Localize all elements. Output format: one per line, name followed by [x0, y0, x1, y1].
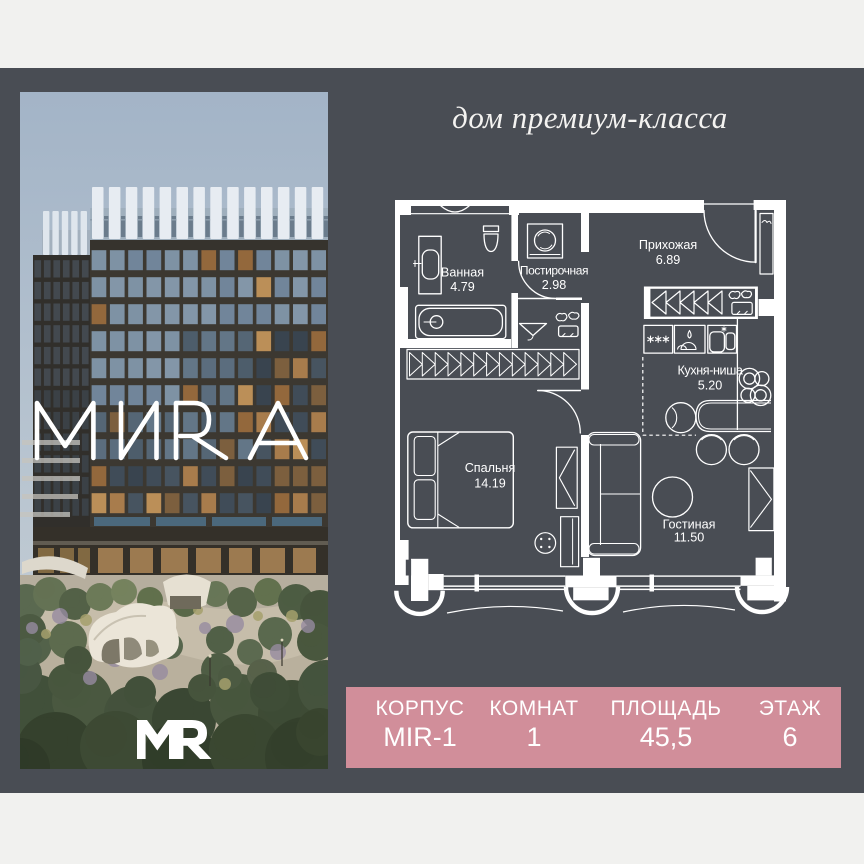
- svg-text:Спальня: Спальня: [465, 461, 516, 475]
- svg-text:Ванная: Ванная: [441, 266, 484, 280]
- svg-text:6.89: 6.89: [656, 253, 681, 267]
- svg-text:5.20: 5.20: [698, 379, 723, 393]
- svg-text:Гостиная: Гостиная: [663, 518, 716, 532]
- svg-text:4.79: 4.79: [450, 280, 475, 294]
- svg-text:2.98: 2.98: [542, 278, 567, 292]
- svg-text:11.50: 11.50: [674, 531, 705, 545]
- svg-text:Постирочная: Постирочная: [520, 264, 588, 278]
- svg-text:Кухня-ниша: Кухня-ниша: [678, 364, 743, 378]
- svg-text:14.19: 14.19: [474, 477, 506, 491]
- svg-text:Прихожая: Прихожая: [639, 238, 697, 252]
